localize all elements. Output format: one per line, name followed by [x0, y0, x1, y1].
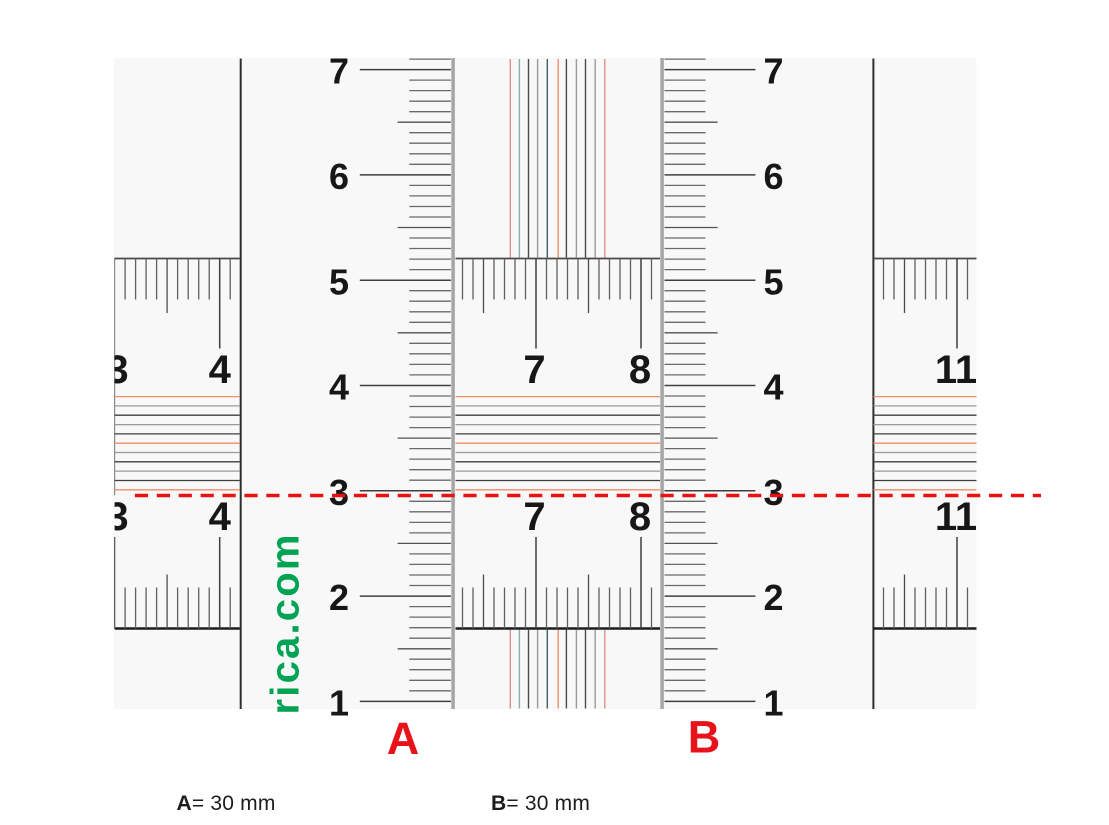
svg-text:B= 30 mm: B= 30 mm — [491, 792, 590, 815]
svg-text:7: 7 — [523, 495, 545, 539]
svg-text:B: B — [688, 711, 721, 762]
svg-text:1: 1 — [329, 683, 349, 724]
svg-text:rica.com: rica.com — [264, 532, 308, 714]
svg-text:7: 7 — [329, 51, 349, 92]
svg-text:8: 8 — [629, 348, 651, 392]
svg-text:1: 1 — [763, 683, 783, 724]
svg-text:4: 4 — [329, 367, 349, 408]
svg-text:4: 4 — [209, 348, 232, 392]
svg-text:4: 4 — [763, 367, 783, 408]
svg-text:5: 5 — [329, 261, 349, 302]
svg-text:11: 11 — [935, 348, 977, 392]
svg-text:7: 7 — [523, 348, 545, 392]
svg-text:5: 5 — [763, 261, 783, 302]
svg-text:A= 30 mm: A= 30 mm — [177, 792, 276, 815]
svg-text:3: 3 — [763, 472, 783, 513]
svg-text:2: 2 — [763, 577, 783, 618]
svg-text:3: 3 — [329, 472, 349, 513]
svg-text:6: 6 — [329, 156, 349, 197]
svg-text:A: A — [387, 713, 420, 764]
svg-text:11: 11 — [935, 495, 977, 539]
svg-text:8: 8 — [629, 495, 651, 539]
svg-text:2: 2 — [329, 577, 349, 618]
svg-text:4: 4 — [209, 495, 232, 539]
svg-text:7: 7 — [763, 51, 783, 92]
svg-text:6: 6 — [763, 156, 783, 197]
